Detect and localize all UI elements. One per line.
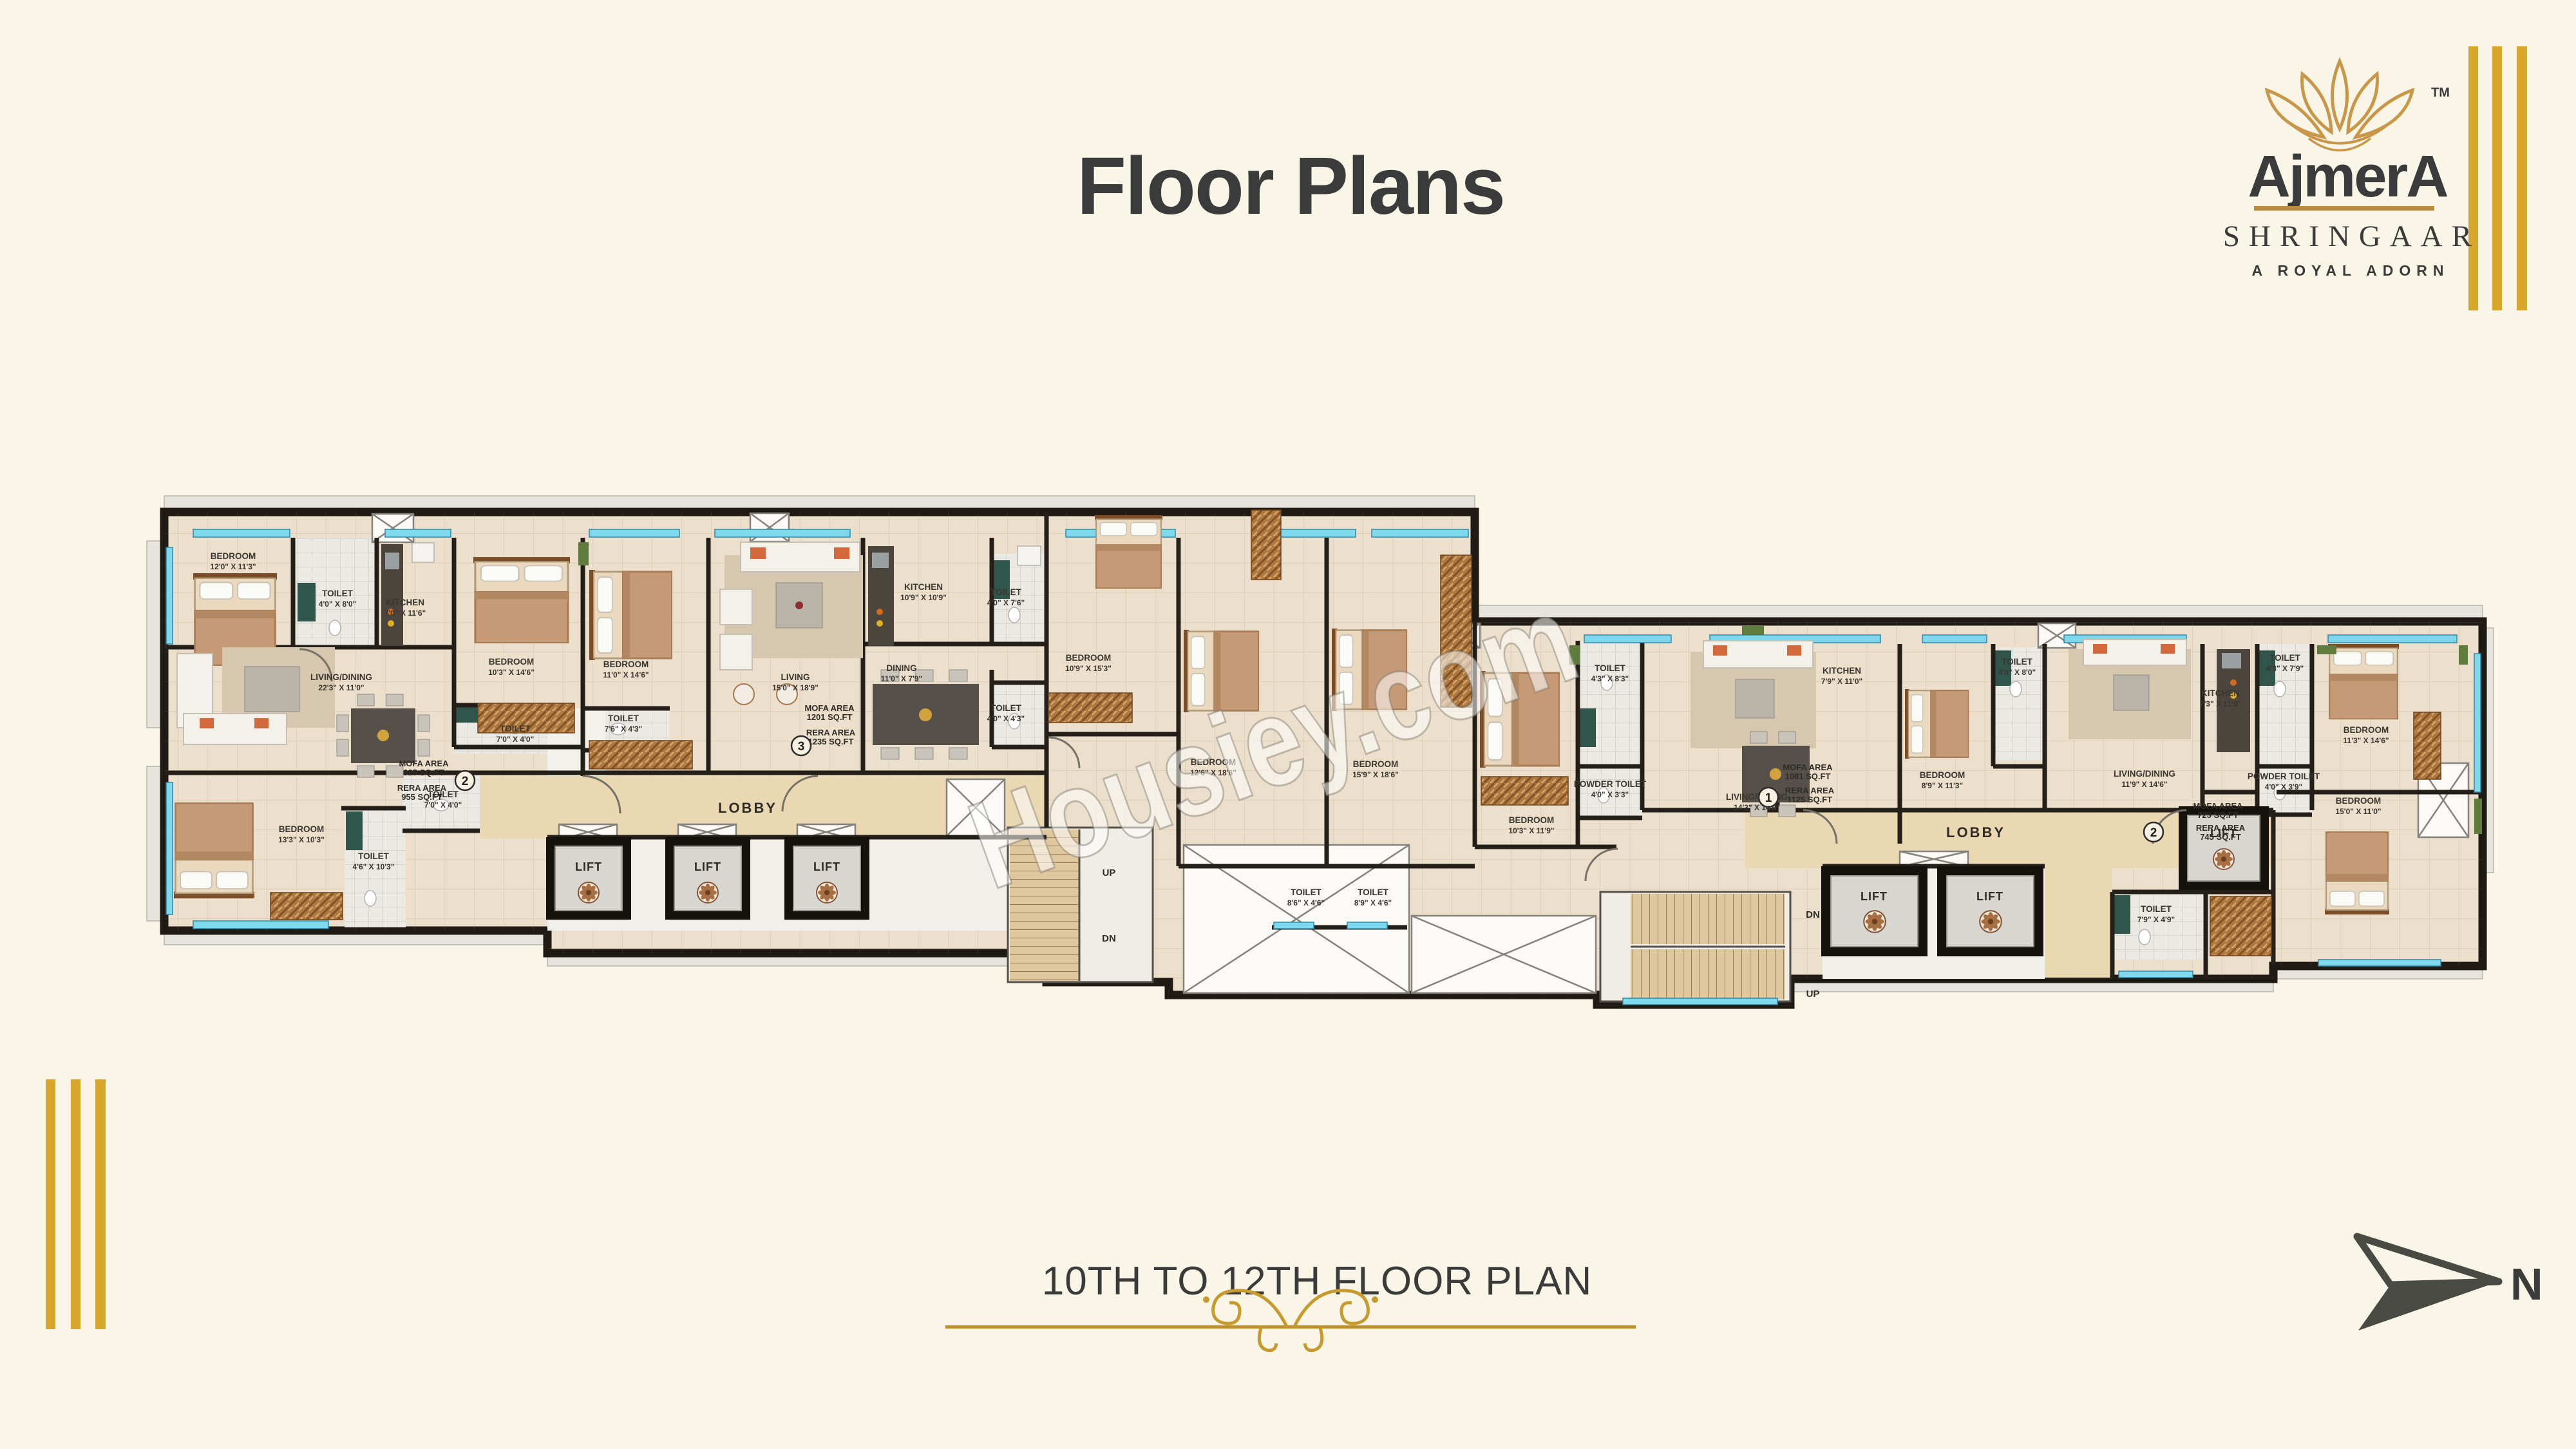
svg-text:BEDROOM: BEDROOM [211, 551, 256, 561]
svg-text:7'9" X 11'0": 7'9" X 11'0" [1821, 677, 1862, 686]
lobby-label: LOBBY [1946, 824, 2005, 840]
svg-text:10'3" X 11'9": 10'3" X 11'9" [1508, 826, 1554, 835]
svg-text:12'0" X 11'3": 12'0" X 11'3" [210, 562, 256, 571]
bed [473, 557, 570, 643]
svg-text:10'3" X 14'6": 10'3" X 14'6" [488, 668, 535, 677]
svg-text:LIFT: LIFT [1976, 890, 2003, 903]
svg-text:1235 SQ.FT: 1235 SQ.FT [808, 737, 854, 746]
svg-text:TOILET: TOILET [990, 587, 1022, 597]
lift: LIFT [1821, 866, 1927, 956]
svg-text:925 SQ.FT: 925 SQ.FT [403, 768, 444, 777]
svg-text:8'9" X 4'6": 8'9" X 4'6" [1354, 898, 1392, 907]
svg-text:22'3" X 11'0": 22'3" X 11'0" [318, 683, 364, 692]
svg-text:MOFA AREA: MOFA AREA [804, 703, 855, 713]
bed [2328, 644, 2399, 719]
svg-text:15'0" X 18'9": 15'0" X 18'9" [772, 683, 819, 692]
stair-dn-label: DN [1806, 909, 1820, 920]
svg-text:7'6" X 4'3": 7'6" X 4'3" [605, 724, 642, 734]
brand-logo: TM AjmerA SHRINGAAR A ROYAL ADORN [2223, 61, 2481, 279]
north-label: N [2510, 1259, 2543, 1309]
svg-text:1201 SQ.FT: 1201 SQ.FT [807, 712, 853, 722]
svg-text:10'9" X 15'3": 10'9" X 15'3" [1065, 664, 1112, 673]
svg-text:TOILET: TOILET [358, 851, 390, 861]
svg-text:13'3" X 10'3": 13'3" X 10'3" [278, 835, 325, 844]
north-arrow-icon [2357, 1236, 2499, 1285]
svg-text:LIVING/DINING: LIVING/DINING [310, 672, 372, 682]
bed [1905, 689, 1968, 759]
lotus-icon [2267, 61, 2412, 151]
gold-stripes-left [46, 1079, 106, 1329]
svg-text:1125 SQ.FT: 1125 SQ.FT [1787, 795, 1832, 804]
svg-text:4'0" X 3'9": 4'0" X 3'9" [2265, 782, 2302, 791]
svg-text:4'0" X 4'3": 4'0" X 4'3" [987, 714, 1025, 723]
north-indicator: N [2357, 1236, 2543, 1331]
svg-text:MOFA AREA: MOFA AREA [399, 759, 449, 768]
svg-text:4'3" X 8'3": 4'3" X 8'3" [1591, 674, 1629, 683]
svg-text:7'3" X 11'9": 7'3" X 11'9" [2200, 699, 2241, 708]
floor-plan: UP DN DN UP [147, 496, 2494, 1005]
logo-tm: TM [2431, 86, 2450, 100]
north-arrow-icon [2358, 1282, 2499, 1331]
svg-text:BEDROOM: BEDROOM [2336, 796, 2382, 806]
lobby-label: LOBBY [718, 800, 777, 816]
svg-text:11'3" X 14'6": 11'3" X 14'6" [2343, 736, 2389, 745]
svg-text:TOILET: TOILET [990, 703, 1022, 713]
svg-text:LIFT: LIFT [1861, 890, 1888, 903]
svg-text:DINING: DINING [886, 663, 916, 673]
svg-text:1: 1 [1765, 791, 1772, 805]
svg-text:2: 2 [462, 775, 469, 788]
svg-text:7'0" X 4'0": 7'0" X 4'0" [424, 800, 462, 810]
svg-text:MOFA AREA: MOFA AREA [2193, 801, 2243, 811]
svg-text:955 SQ.FT: 955 SQ.FT [401, 792, 442, 802]
lift: LIFT [665, 837, 750, 920]
svg-text:POWDER TOILET: POWDER TOILET [1574, 779, 1647, 789]
lift: LIFT [1937, 866, 2043, 956]
svg-text:KITCHEN: KITCHEN [386, 598, 424, 607]
logo-brand: AjmerA [2248, 144, 2448, 209]
page-title: Floor Plans [1077, 140, 1504, 231]
logo-tagline: A ROYAL ADORN [2252, 262, 2450, 279]
svg-text:TOILET: TOILET [1595, 663, 1626, 673]
lift: LIFT [784, 837, 869, 920]
svg-text:LIVING: LIVING [781, 672, 810, 682]
svg-text:TOILET: TOILET [500, 724, 531, 734]
svg-text:4'0" X 8'0": 4'0" X 8'0" [319, 600, 356, 609]
svg-text:10'9" X 10'9": 10'9" X 10'9" [900, 593, 947, 602]
bed [2325, 832, 2389, 914]
svg-text:15'0" X 11'0": 15'0" X 11'0" [2335, 807, 2381, 816]
svg-text:3: 3 [798, 740, 805, 753]
svg-text:TOILET: TOILET [322, 589, 354, 598]
gold-stripes-right [2468, 46, 2527, 310]
svg-text:TOILET: TOILET [2269, 653, 2301, 663]
svg-text:7'0" X 4'0": 7'0" X 4'0" [497, 735, 534, 744]
void-shaft [1412, 916, 1596, 993]
logo-project: SHRINGAAR [2223, 220, 2481, 253]
svg-text:BEDROOM: BEDROOM [1066, 653, 1112, 663]
svg-text:LIVING/DINING: LIVING/DINING [2114, 769, 2175, 779]
svg-text:KITCHEN: KITCHEN [904, 582, 943, 592]
svg-text:MOFA AREA: MOFA AREA [1783, 762, 1833, 772]
svg-text:LIFT: LIFT [813, 860, 840, 873]
page: { "title": { "text": "Floor Plans" }, "l… [0, 0, 2576, 1449]
svg-text:BEDROOM: BEDROOM [279, 824, 325, 834]
bed [589, 570, 672, 660]
svg-text:7'0" X 11'6": 7'0" X 11'6" [384, 609, 426, 618]
svg-text:BEDROOM: BEDROOM [489, 657, 535, 667]
svg-text:BEDROOM: BEDROOM [603, 659, 649, 669]
svg-text:4'0" X 7'6": 4'0" X 7'6" [987, 598, 1025, 607]
svg-text:TOILET: TOILET [608, 714, 639, 723]
svg-text:8'6" X 4'6": 8'6" X 4'6" [1287, 898, 1325, 907]
svg-text:11'9" X 14'6": 11'9" X 14'6" [2121, 780, 2167, 789]
svg-text:BEDROOM: BEDROOM [2344, 725, 2389, 735]
svg-text:TOILET: TOILET [2002, 657, 2033, 667]
svg-text:LIFT: LIFT [575, 860, 602, 873]
svg-text:1081 SQ.FT: 1081 SQ.FT [1785, 772, 1831, 781]
svg-text:4'0" X 8'0": 4'0" X 8'0" [1998, 668, 2036, 677]
svg-text:BEDROOM: BEDROOM [1920, 770, 1965, 780]
svg-text:4'3" X 7'9": 4'3" X 7'9" [2266, 664, 2304, 673]
lift: LIFT [546, 837, 631, 920]
svg-text:2: 2 [2150, 826, 2157, 840]
svg-text:RERA AREA: RERA AREA [1785, 786, 1835, 795]
svg-text:8'9" X 11'3": 8'9" X 11'3" [1922, 781, 1963, 790]
svg-text:4'6" X 10'3": 4'6" X 10'3" [352, 862, 394, 871]
svg-text:TOILET: TOILET [1358, 887, 1389, 897]
bed [174, 803, 254, 898]
svg-text:KITCHEN: KITCHEN [2201, 688, 2240, 698]
svg-text:LIFT: LIFT [694, 860, 721, 873]
svg-text:725 SQ.FT: 725 SQ.FT [2197, 810, 2239, 820]
svg-text:RERA AREA: RERA AREA [806, 728, 856, 737]
svg-text:TOILET: TOILET [1291, 887, 1322, 897]
svg-text:7'9" X 4'9": 7'9" X 4'9" [2137, 915, 2175, 924]
svg-text:4'0" X 3'3": 4'0" X 3'3" [1591, 790, 1629, 799]
svg-text:BEDROOM: BEDROOM [1509, 815, 1555, 825]
svg-text:KITCHEN: KITCHEN [1823, 666, 1861, 676]
logo-underline [2254, 206, 2434, 211]
staircase-right: DN UP [1600, 892, 1820, 1001]
svg-text:TOILET: TOILET [2141, 904, 2172, 914]
svg-text:RERA AREA: RERA AREA [2196, 823, 2246, 833]
svg-text:11'0" X 7'9": 11'0" X 7'9" [881, 674, 922, 683]
svg-text:745 SQ.FT: 745 SQ.FT [2200, 832, 2241, 842]
svg-text:RERA AREA: RERA AREA [397, 783, 447, 793]
svg-text:11'0" X 14'6": 11'0" X 14'6" [603, 670, 649, 679]
stair-dn-label: DN [1102, 933, 1116, 944]
floor-plan-sheet: Floor Plans TM AjmerA SHRINGAAR A ROYAL … [0, 0, 2576, 1449]
bed [1095, 515, 1162, 588]
stair-up-label: UP [1806, 989, 1820, 999]
svg-text:POWDER TOILET: POWDER TOILET [2248, 772, 2320, 781]
